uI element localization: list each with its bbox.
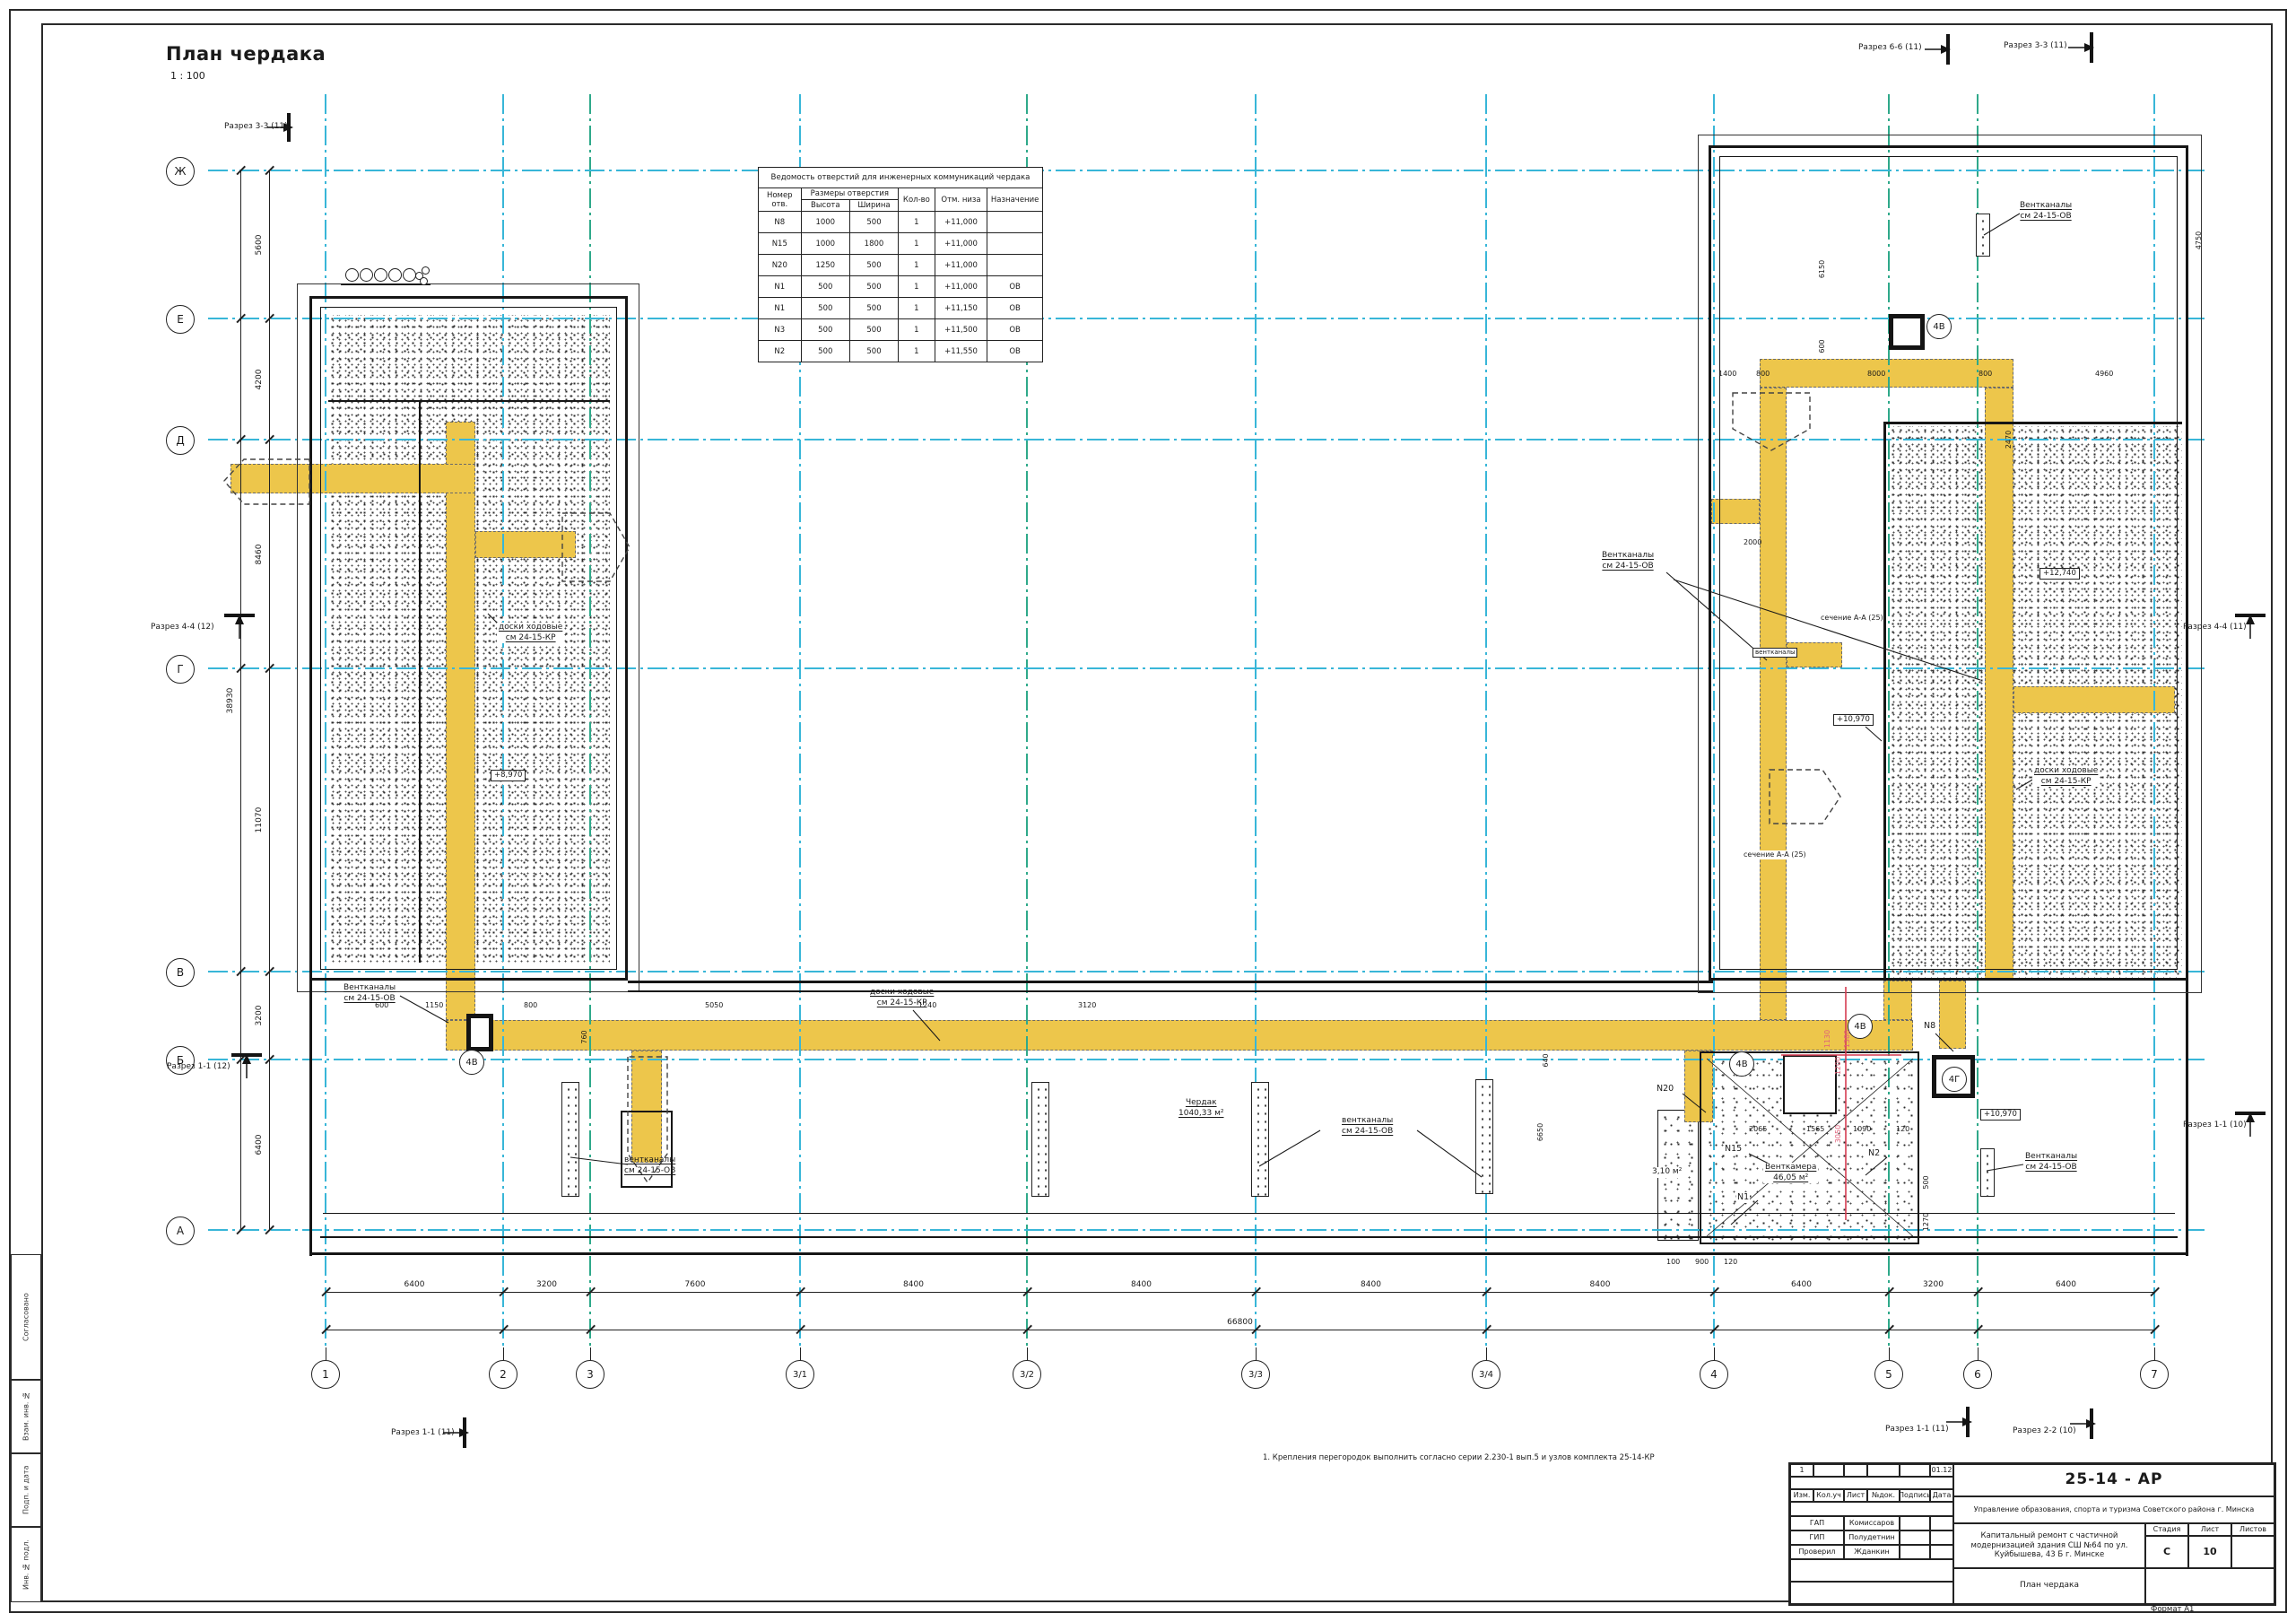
- vent-pipe-circle: [374, 268, 387, 282]
- axis-bubble-Ж: Ж: [166, 157, 195, 186]
- col-header-height: Высота: [801, 200, 849, 212]
- td: +11,000: [935, 233, 987, 255]
- sign-cell: [1900, 1545, 1930, 1559]
- td: +11,500: [935, 319, 987, 341]
- td: N2: [759, 341, 802, 362]
- role-gip: ГИП: [1790, 1530, 1844, 1545]
- margin-stamp-sign-date: Подп. и дата: [11, 1453, 41, 1527]
- role-gip-name: Полудетнин: [1844, 1530, 1900, 1545]
- margin-stamp-approved: Согласовано: [11, 1254, 41, 1380]
- dim-value: 3200: [520, 1280, 574, 1289]
- section-mark-label: Разрез 1-1 (11): [1885, 1425, 1949, 1435]
- dim-text: 900: [1695, 1258, 1709, 1267]
- dim-text: 1240: [918, 1001, 936, 1010]
- section-mark-label: Разрез 1-1 (10): [2183, 1121, 2247, 1131]
- axis-bubble-7: 7: [2140, 1360, 2169, 1389]
- margin-stamp-replace-inv: Взам. инв. №: [11, 1380, 41, 1453]
- col-header-size: Размеры отверстия: [801, 188, 898, 200]
- opening-mark: N20: [1656, 1084, 1674, 1094]
- col-header-number: Номер отв.: [759, 188, 802, 212]
- sheet-label: Лист: [2188, 1523, 2231, 1536]
- vent-pipe-base-line: [341, 283, 430, 285]
- detail-mark: 4Г: [1942, 1067, 1967, 1092]
- td: 1800: [849, 233, 898, 255]
- shaft-box: [1889, 314, 1925, 350]
- dim-text: 2470: [2005, 431, 2013, 449]
- room-area-label: 3,10 м²: [1650, 1167, 1683, 1178]
- drawing-canvas: { "sheet": { "title": "План чердака", "s…: [0, 0, 2296, 1622]
- td: ОВ: [987, 298, 1043, 319]
- blank-cell: [1790, 1582, 1953, 1604]
- dim-text: 760: [580, 1030, 589, 1043]
- td: 500: [801, 276, 849, 298]
- margin-stamp-inv-no: Инв. № подл.: [11, 1527, 41, 1602]
- dim-text: 120: [1724, 1258, 1737, 1267]
- axis-bubble-Д: Д: [166, 426, 195, 455]
- col-header-elev: Отм. низа: [935, 188, 987, 212]
- col-header-purpose: Назначение: [987, 188, 1043, 212]
- date-cell: [1930, 1530, 1953, 1545]
- section-mark-label: Разрез 3-3 (11): [224, 122, 288, 133]
- dim-total-line: [326, 1330, 2154, 1330]
- dim-text: 1200: [1834, 1057, 1843, 1075]
- col-podpis: Подпись: [1900, 1489, 1930, 1502]
- rev-cell: [1867, 1464, 1900, 1477]
- blank-cell: [1790, 1559, 1953, 1582]
- axis-extension: [1978, 1347, 1979, 1360]
- dim-value: 8400: [1115, 1280, 1169, 1289]
- dim-value: 3200: [255, 989, 264, 1042]
- detail-mark: 4В: [459, 1050, 484, 1075]
- vent-pipe-circle: [403, 268, 416, 282]
- td: +11,000: [935, 276, 987, 298]
- elevation-mark: +8,970: [491, 770, 526, 781]
- left-wing-partition: [419, 400, 421, 963]
- tr: Ведомость отверстий для инженерных комму…: [759, 168, 1043, 188]
- elevation-mark: +12,740: [2039, 568, 2080, 580]
- td: N3: [759, 319, 802, 341]
- dim-total-line: [240, 170, 241, 1230]
- table-row: N15005001+11,150ОВ: [759, 298, 1043, 319]
- col-data: Дата: [1930, 1489, 1953, 1502]
- vent-channel-strip: [561, 1082, 579, 1197]
- section-mark-label: Разрез 6-6 (11): [1858, 43, 1922, 54]
- corridor-top-wall: [628, 981, 1713, 983]
- dim-text: 1150: [425, 1001, 443, 1010]
- axis-extension: [1256, 1347, 1257, 1360]
- sheet-number: 10: [2188, 1536, 2231, 1568]
- dim-chain-line: [269, 170, 270, 1230]
- axis-bubble-3/3: 3/3: [1241, 1360, 1270, 1389]
- col-koluch: Кол.уч: [1813, 1489, 1844, 1502]
- td: 1000: [801, 233, 849, 255]
- vent-channels-label: Вентканалы см 24-15-ОВ: [2020, 201, 2072, 222]
- axis-bubble-Е: Е: [166, 305, 195, 334]
- rev-blank-row: [1790, 1477, 1953, 1489]
- td: 500: [849, 319, 898, 341]
- dim-total-value: 66800: [1213, 1318, 1267, 1327]
- attic-area-label: Чердак 1040,33 м²: [1178, 1098, 1223, 1119]
- left-wing-partition: [328, 400, 610, 402]
- dim-text: 1400: [1718, 370, 1736, 379]
- td: N20: [759, 255, 802, 276]
- dim-text: 640: [1542, 1053, 1551, 1067]
- td: 1: [899, 233, 935, 255]
- project-name: Капитальный ремонт с частичной модерниза…: [1953, 1523, 2145, 1568]
- dim-value: 6400: [1775, 1280, 1829, 1289]
- section-mark-label: Разрез 4-4 (11): [2183, 623, 2247, 633]
- dim-text: 120: [1896, 1125, 1909, 1134]
- td: [987, 255, 1043, 276]
- elevation-mark: +10,970: [1980, 1109, 2021, 1121]
- dim-text: 500: [1922, 1175, 1931, 1189]
- rev-cell: [1900, 1464, 1930, 1477]
- axis-extension: [1486, 1347, 1487, 1360]
- axis-extension: [503, 1347, 504, 1360]
- organization-name: Управление образования, спорта и туризма…: [1953, 1496, 2274, 1523]
- td: 1: [899, 298, 935, 319]
- vent-channel-strip: [1980, 1148, 1995, 1197]
- section-mark-label: Разрез 3-3 (11): [2004, 41, 2067, 52]
- td: N15: [759, 233, 802, 255]
- section-mark-label: Разрез 2-2 (10): [2013, 1426, 2076, 1437]
- sign-cell: [1900, 1530, 1930, 1545]
- dim-text: 8000: [1867, 370, 1885, 379]
- vent-pipe-circle: [420, 277, 428, 285]
- td: N1: [759, 298, 802, 319]
- rev-num-cell: 1: [1790, 1464, 1813, 1477]
- vent-pipe-circle: [388, 268, 402, 282]
- dim-value: 6400: [387, 1280, 441, 1289]
- corridor-top-wall-inner: [628, 990, 1713, 992]
- dim-text: 6150: [1818, 260, 1827, 278]
- col-izm: Изм.: [1790, 1489, 1813, 1502]
- td: 1: [899, 276, 935, 298]
- role-checked: Проверил: [1790, 1545, 1844, 1559]
- axis-extension: [1027, 1347, 1028, 1360]
- section-mark-label: Разрез 4-4 (12): [151, 623, 214, 633]
- td: ОВ: [987, 319, 1043, 341]
- section-view-label: сечение А-А (25): [1742, 850, 1808, 859]
- axis-bubble-В: В: [166, 958, 195, 987]
- vent-channel-strip: [1031, 1082, 1049, 1197]
- dim-value: 8400: [887, 1280, 941, 1289]
- walk-board-main-run: [446, 1020, 1913, 1051]
- td: N8: [759, 212, 802, 233]
- col-list: Лист: [1844, 1489, 1867, 1502]
- tr: Номер отв. Размеры отверстия Кол-во Отм.…: [759, 188, 1043, 200]
- dim-text: 5050: [705, 1001, 723, 1010]
- td: ОВ: [987, 276, 1043, 298]
- dim-value: 11070: [255, 793, 264, 847]
- dim-value: 6400: [2039, 1280, 2093, 1289]
- corridor-bottom-wall: [309, 1252, 2188, 1255]
- vent-channel-strip: [1475, 1079, 1493, 1194]
- section-mark-label: Разрез 1-1 (12): [167, 1062, 230, 1073]
- dim-text: 2000: [1744, 538, 1761, 547]
- thead: Ведомость отверстий для инженерных комму…: [759, 168, 1043, 212]
- dim-text: 3050: [1834, 1125, 1843, 1143]
- stage-value: С: [2145, 1536, 2188, 1568]
- axis-bubble-Г: Г: [166, 655, 195, 684]
- corridor-left-wall: [309, 981, 312, 1256]
- sheets-total: [2231, 1536, 2274, 1568]
- td: N1: [759, 276, 802, 298]
- opening-mark: N2: [1867, 1148, 1881, 1159]
- blank-cell: [2145, 1568, 2274, 1604]
- td: 500: [849, 212, 898, 233]
- detail-mark: 4В: [1729, 1051, 1754, 1077]
- dim-text: 1565: [1806, 1125, 1824, 1134]
- td: 500: [849, 255, 898, 276]
- axis-bubble-3: 3: [576, 1360, 604, 1389]
- dim-text: 1270: [1922, 1213, 1931, 1231]
- dim-text: 3120: [1078, 1001, 1096, 1010]
- sign-cell: [1900, 1516, 1930, 1530]
- document-code: 25-14 - АР: [1953, 1464, 2274, 1496]
- vent-pipe-circle: [360, 268, 373, 282]
- dim-text: 1130: [1823, 1030, 1832, 1048]
- opening-mark: N8: [1923, 1021, 1936, 1032]
- detail-mark: 4В: [1926, 314, 1952, 339]
- right-wing-partition: [1883, 422, 2182, 424]
- openings-table: Ведомость отверстий для инженерных комму…: [758, 167, 1043, 362]
- opening-mark: N15: [1724, 1144, 1743, 1155]
- left-wing-inner-wall: [320, 307, 617, 970]
- dim-text: 1090: [1853, 1125, 1871, 1134]
- td: [987, 233, 1043, 255]
- role-gap-name: Комиссаров: [1844, 1516, 1900, 1530]
- axis-extension: [1889, 1347, 1890, 1360]
- vent-chamber-label: Венткамера 46,05 м²: [1763, 1163, 1818, 1183]
- axis-bubble-5: 5: [1874, 1360, 1903, 1389]
- axis-bubble-3/1: 3/1: [786, 1360, 814, 1389]
- duct-box-label: вентканалы: [1752, 648, 1797, 658]
- td: +11,000: [935, 255, 987, 276]
- td: 500: [801, 319, 849, 341]
- axis-extension: [590, 1347, 591, 1360]
- axis-bubble-3/2: 3/2: [1013, 1360, 1041, 1389]
- table-row: N15005001+11,000ОВ: [759, 276, 1043, 298]
- right-wing-partition: [1883, 422, 1886, 981]
- elevation-mark: +10,970: [1833, 714, 1874, 726]
- td: 500: [801, 298, 849, 319]
- dim-value: 8460: [255, 528, 264, 581]
- axis-extension: [1714, 1347, 1715, 1360]
- dim-text: 100: [1666, 1258, 1680, 1267]
- table-row: N25005001+11,550ОВ: [759, 341, 1043, 362]
- shaft-cutout: [1783, 1055, 1837, 1114]
- td: 1250: [801, 255, 849, 276]
- axis-bubble-1: 1: [311, 1360, 340, 1389]
- vent-channels-label: Вентканалы см 24-15-ОВ: [1602, 551, 1654, 571]
- td: 1: [899, 212, 935, 233]
- vent-channels-label: вентканалы см 24-15-ОВ: [1342, 1116, 1393, 1137]
- role-gap: ГАП: [1790, 1516, 1844, 1530]
- openings-table-body: N810005001+11,000N15100018001+11,000N201…: [759, 212, 1043, 362]
- rev-cell: [1844, 1464, 1867, 1477]
- td: 500: [801, 341, 849, 362]
- vent-channel-strip: [1251, 1082, 1269, 1197]
- axis-bubble-4: 4: [1700, 1360, 1728, 1389]
- page-title: План чердака: [166, 43, 326, 65]
- axis-bubble-А: А: [166, 1216, 195, 1245]
- vent-pipe-circle: [345, 268, 359, 282]
- axis-extension: [2154, 1347, 2155, 1360]
- stage-label: Стадия: [2145, 1523, 2188, 1536]
- td: 1: [899, 341, 935, 362]
- dim-text: 2065: [1749, 1125, 1767, 1134]
- general-note: 1. Крепления перегородок выполнить согла…: [1263, 1453, 1765, 1462]
- opening-mark: N1: [1736, 1192, 1750, 1203]
- vent-channel-strip: [1976, 214, 1990, 257]
- td: 1: [899, 319, 935, 341]
- sheet-title-cell: План чердака: [1953, 1568, 2145, 1604]
- date-cell: [1930, 1545, 1953, 1559]
- section-view-label: сечение А-А (25): [1821, 614, 1883, 623]
- walk-boards-label: доски ходовые см 24-15-КР: [497, 623, 564, 643]
- shaft-box: [466, 1014, 493, 1051]
- td: 1: [899, 255, 935, 276]
- td: +11,150: [935, 298, 987, 319]
- section-mark-label: Разрез 1-1 (11): [391, 1428, 455, 1439]
- openings-table-title: Ведомость отверстий для инженерных комму…: [759, 168, 1043, 188]
- vent-channels-label: Вентканалы см 24-15-ОВ: [2023, 1152, 2079, 1173]
- axis-bubble-3/4: 3/4: [1472, 1360, 1500, 1389]
- dim-value: 8400: [1573, 1280, 1627, 1289]
- table-row: N15100018001+11,000: [759, 233, 1043, 255]
- dim-value: 8400: [1344, 1280, 1398, 1289]
- page-scale: 1 : 100: [170, 70, 205, 82]
- dim-text: 4960: [2095, 370, 2113, 379]
- sheets-label: Листов: [2231, 1523, 2274, 1536]
- format-label: Формат А1: [2151, 1605, 2194, 1614]
- dim-value: 6400: [255, 1118, 264, 1172]
- col-ndok: №док.: [1867, 1489, 1900, 1502]
- dim-text: 800: [1756, 370, 1770, 379]
- dim-total-value: 38930: [226, 674, 235, 728]
- table-row: N810005001+11,000: [759, 212, 1043, 233]
- td: 500: [849, 341, 898, 362]
- vent-channels-label: вентканалы см 24-15-ОВ: [624, 1155, 675, 1176]
- td: [987, 212, 1043, 233]
- dim-value: 3200: [1907, 1280, 1961, 1289]
- td: 1000: [801, 212, 849, 233]
- dim-value: 5600: [255, 218, 264, 272]
- col-header-width: Ширина: [849, 200, 898, 212]
- rev-cell: [1813, 1464, 1844, 1477]
- td: +11,000: [935, 212, 987, 233]
- right-wing-inner-wall: [1719, 156, 2178, 970]
- table-row: N35005001+11,500ОВ: [759, 319, 1043, 341]
- td: ОВ: [987, 341, 1043, 362]
- rev-date-cell: 01.12: [1930, 1464, 1953, 1477]
- axis-extension: [326, 1347, 326, 1360]
- dim-value: 4200: [255, 353, 264, 406]
- vent-pipe-circle: [422, 266, 430, 275]
- dim-text: 600: [1818, 339, 1827, 353]
- dim-text: 1380: [1843, 1030, 1852, 1048]
- axis-extension: [800, 1347, 801, 1360]
- role-blank-row: [1790, 1502, 1953, 1516]
- date-cell: [1930, 1516, 1953, 1530]
- td: +11,550: [935, 341, 987, 362]
- role-checked-name: Жданкин: [1844, 1545, 1900, 1559]
- td: 500: [849, 298, 898, 319]
- dim-text: 6650: [1536, 1123, 1545, 1141]
- col-header-qty: Кол-во: [899, 188, 935, 212]
- dim-chain-line: [326, 1292, 2154, 1293]
- title-block: 1 01.12 Изм. Кол.уч Лист №док. Подпись Д…: [1788, 1462, 2276, 1606]
- axis-bubble-6: 6: [1963, 1360, 1992, 1389]
- dim-value: 7600: [668, 1280, 722, 1289]
- walk-boards-label: доски ходовые см 24-15-КР: [2032, 766, 2100, 787]
- dim-text: 600: [375, 1001, 388, 1010]
- corridor-right-wall: [2186, 981, 2188, 1256]
- axis-bubble-2: 2: [489, 1360, 517, 1389]
- dim-text: 800: [1979, 370, 1992, 379]
- dim-text: 4750: [2195, 231, 2204, 249]
- td: 500: [849, 276, 898, 298]
- table-row: N2012505001+11,000: [759, 255, 1043, 276]
- dim-text: 800: [524, 1001, 537, 1010]
